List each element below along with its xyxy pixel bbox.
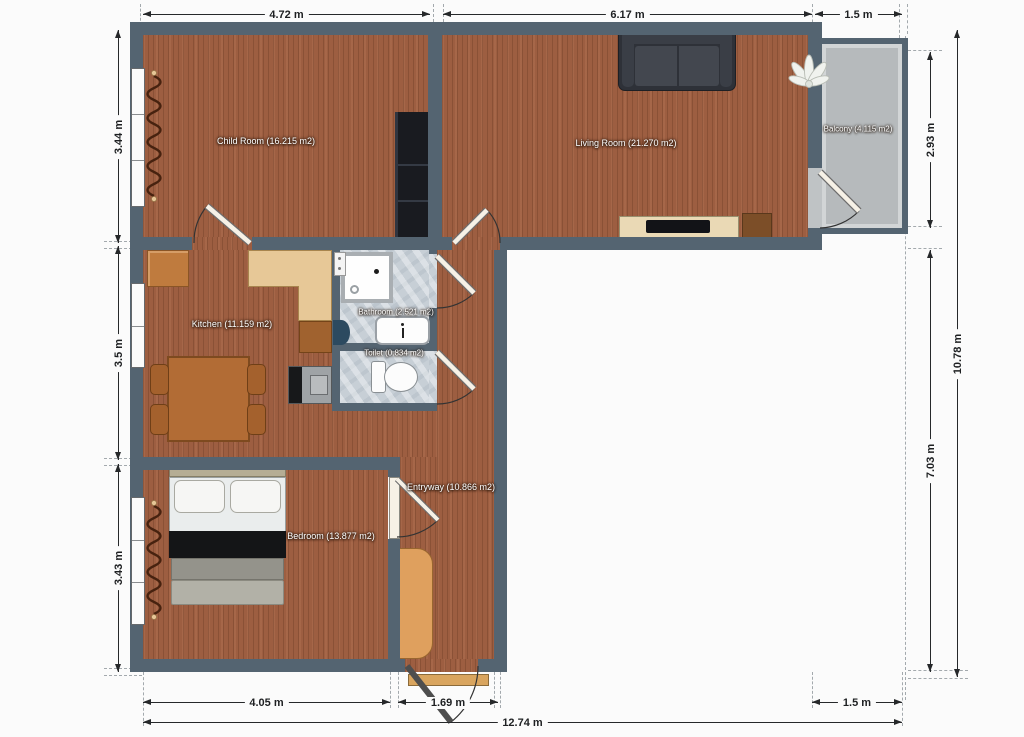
wardrobe-divider — [398, 200, 428, 202]
sofa-arm — [720, 31, 732, 87]
guide-line — [104, 675, 142, 676]
dimension-left-3: 3.43 m — [118, 464, 119, 672]
dimension-label: 1.5 m — [838, 697, 876, 709]
doormat — [408, 674, 489, 686]
guide-line — [908, 226, 942, 227]
guide-line — [500, 672, 501, 708]
sofa-cushion-divider — [677, 46, 679, 86]
dimension-label: 10.78 m — [952, 328, 964, 378]
dimension-label: 7.03 m — [925, 439, 937, 483]
kitchen-counter[interactable] — [298, 286, 332, 321]
dimension-label: 2.93 m — [925, 118, 937, 162]
dimension-bottom-3: 1.5 m — [812, 702, 902, 703]
knob-icon — [338, 257, 341, 260]
room-label-bedroom: Bedroom (13.877 m2) — [287, 531, 375, 541]
corner-basin[interactable] — [333, 320, 350, 345]
faucet-icon — [401, 323, 404, 326]
dimension-label: 12.74 m — [497, 717, 547, 729]
balcony-wall — [822, 38, 908, 44]
dimension-left-2: 3.5 m — [118, 246, 119, 460]
window[interactable] — [131, 497, 145, 625]
window-mullion — [132, 540, 144, 541]
chair[interactable] — [150, 404, 169, 435]
dimension-label: 1.5 m — [839, 9, 877, 21]
wall — [130, 22, 822, 35]
chair[interactable] — [247, 404, 266, 435]
bedroom-door-frame[interactable] — [389, 477, 400, 539]
wall — [500, 237, 822, 250]
room-label-toilet: Toilet (0.834 m2) — [364, 349, 424, 358]
bed-bench[interactable] — [171, 580, 284, 605]
sofa[interactable] — [618, 28, 736, 91]
wall — [130, 237, 192, 250]
window-mullion — [132, 114, 144, 115]
bed-blanket[interactable] — [169, 531, 286, 558]
window-mullion — [132, 326, 144, 327]
guide-line — [902, 672, 903, 726]
dimension-bottom-total: 12.74 m — [143, 722, 902, 723]
wall — [808, 22, 822, 168]
shower-head-icon — [374, 269, 379, 274]
threshold — [192, 237, 252, 250]
toilet-bowl[interactable] — [384, 362, 418, 392]
threshold — [452, 237, 500, 250]
threshold — [429, 350, 437, 404]
room-label-child: Child Room (16.215 m2) — [217, 136, 315, 146]
window-mullion — [132, 582, 144, 583]
entry-wardrobe[interactable] — [399, 548, 433, 659]
balcony-wall — [822, 228, 908, 234]
wardrobe-divider — [398, 164, 428, 166]
dimension-right-lower: 7.03 m — [930, 250, 931, 672]
guide-line — [907, 4, 908, 34]
room-balcony-floor[interactable] — [822, 44, 902, 228]
guide-line — [908, 678, 968, 679]
dimension-label: 6.17 m — [605, 9, 649, 21]
dimension-label: 1.69 m — [426, 697, 470, 709]
balcony-wall — [902, 38, 908, 234]
dimension-bottom-1: 4.05 m — [143, 702, 390, 703]
bathroom-sink[interactable] — [375, 316, 430, 345]
dimension-top-1: 4.72 m — [143, 14, 430, 15]
dimension-top-2: 6.17 m — [443, 14, 812, 15]
wall — [388, 539, 400, 672]
wall — [130, 659, 405, 672]
dimension-label: 4.05 m — [244, 697, 288, 709]
knob-icon — [338, 267, 341, 270]
room-label-bathroom: Bathroom (2.521 m2) — [358, 308, 434, 317]
wall — [428, 35, 442, 237]
sofa-arm — [622, 31, 634, 87]
bed-bench[interactable] — [171, 558, 284, 580]
dimension-label: 4.72 m — [264, 9, 308, 21]
guide-line — [908, 50, 942, 51]
dimension-label: 3.43 m — [113, 546, 125, 590]
window[interactable] — [131, 68, 145, 207]
window-mullion — [132, 160, 144, 161]
room-entryway-corridor-floor[interactable] — [437, 250, 494, 659]
shower-drain-icon — [350, 285, 359, 294]
chair[interactable] — [247, 364, 266, 395]
room-label-entryway: Entryway (10.866 m2) — [407, 482, 495, 492]
room-label-balcony: Balcony (4.115 m2) — [824, 125, 893, 134]
kitchen-counter[interactable] — [147, 250, 189, 287]
guide-line — [390, 672, 391, 708]
dimension-right-balcony: 2.93 m — [930, 52, 931, 228]
wall — [388, 457, 400, 477]
wall — [130, 457, 400, 470]
stove-burner — [310, 375, 328, 395]
guide-line — [899, 4, 900, 38]
wall — [494, 250, 507, 672]
window[interactable] — [131, 283, 145, 368]
tv[interactable] — [646, 220, 710, 233]
guide-line — [908, 248, 942, 249]
wall-shelf[interactable] — [334, 252, 346, 276]
dining-table[interactable] — [167, 356, 250, 442]
threshold — [405, 659, 478, 672]
bed-pillow[interactable] — [174, 480, 225, 513]
passage-floor[interactable] — [332, 411, 437, 457]
wall — [429, 250, 437, 254]
faucet-icon — [402, 328, 404, 338]
room-label-living: Living Room (21.270 m2) — [575, 138, 676, 148]
dimension-bottom-2: 1.69 m — [398, 702, 498, 703]
wall — [252, 237, 452, 250]
dimension-top-3: 1.5 m — [815, 14, 902, 15]
kitchen-cabinet[interactable] — [299, 321, 332, 353]
threshold — [429, 254, 437, 308]
stove[interactable] — [288, 366, 332, 404]
dimension-label: 3.5 m — [113, 334, 125, 372]
dimension-right-total: 10.78 m — [957, 30, 958, 677]
wardrobe[interactable] — [395, 112, 428, 237]
stove-panel — [289, 367, 302, 403]
threshold — [808, 168, 822, 228]
kitchen-counter[interactable] — [248, 250, 332, 287]
chair[interactable] — [150, 364, 169, 395]
dimension-label: 3.44 m — [113, 114, 125, 158]
bed-pillow[interactable] — [230, 480, 281, 513]
shower[interactable] — [341, 252, 393, 303]
floorplan-canvas: Child Room (16.215 m2) Living Room (21.2… — [0, 0, 1024, 737]
dimension-left-1: 3.44 m — [118, 30, 119, 243]
wall — [332, 403, 437, 411]
room-label-kitchen: Kitchen (11.159 m2) — [192, 319, 272, 329]
